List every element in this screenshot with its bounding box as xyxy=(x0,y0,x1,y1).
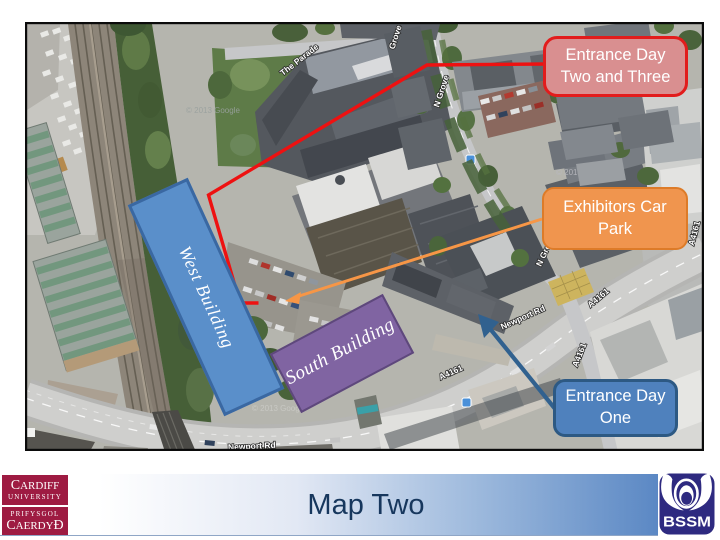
svg-text:BSSM: BSSM xyxy=(663,514,711,531)
svg-text:© 2013 Google: © 2013 Google xyxy=(186,106,240,115)
